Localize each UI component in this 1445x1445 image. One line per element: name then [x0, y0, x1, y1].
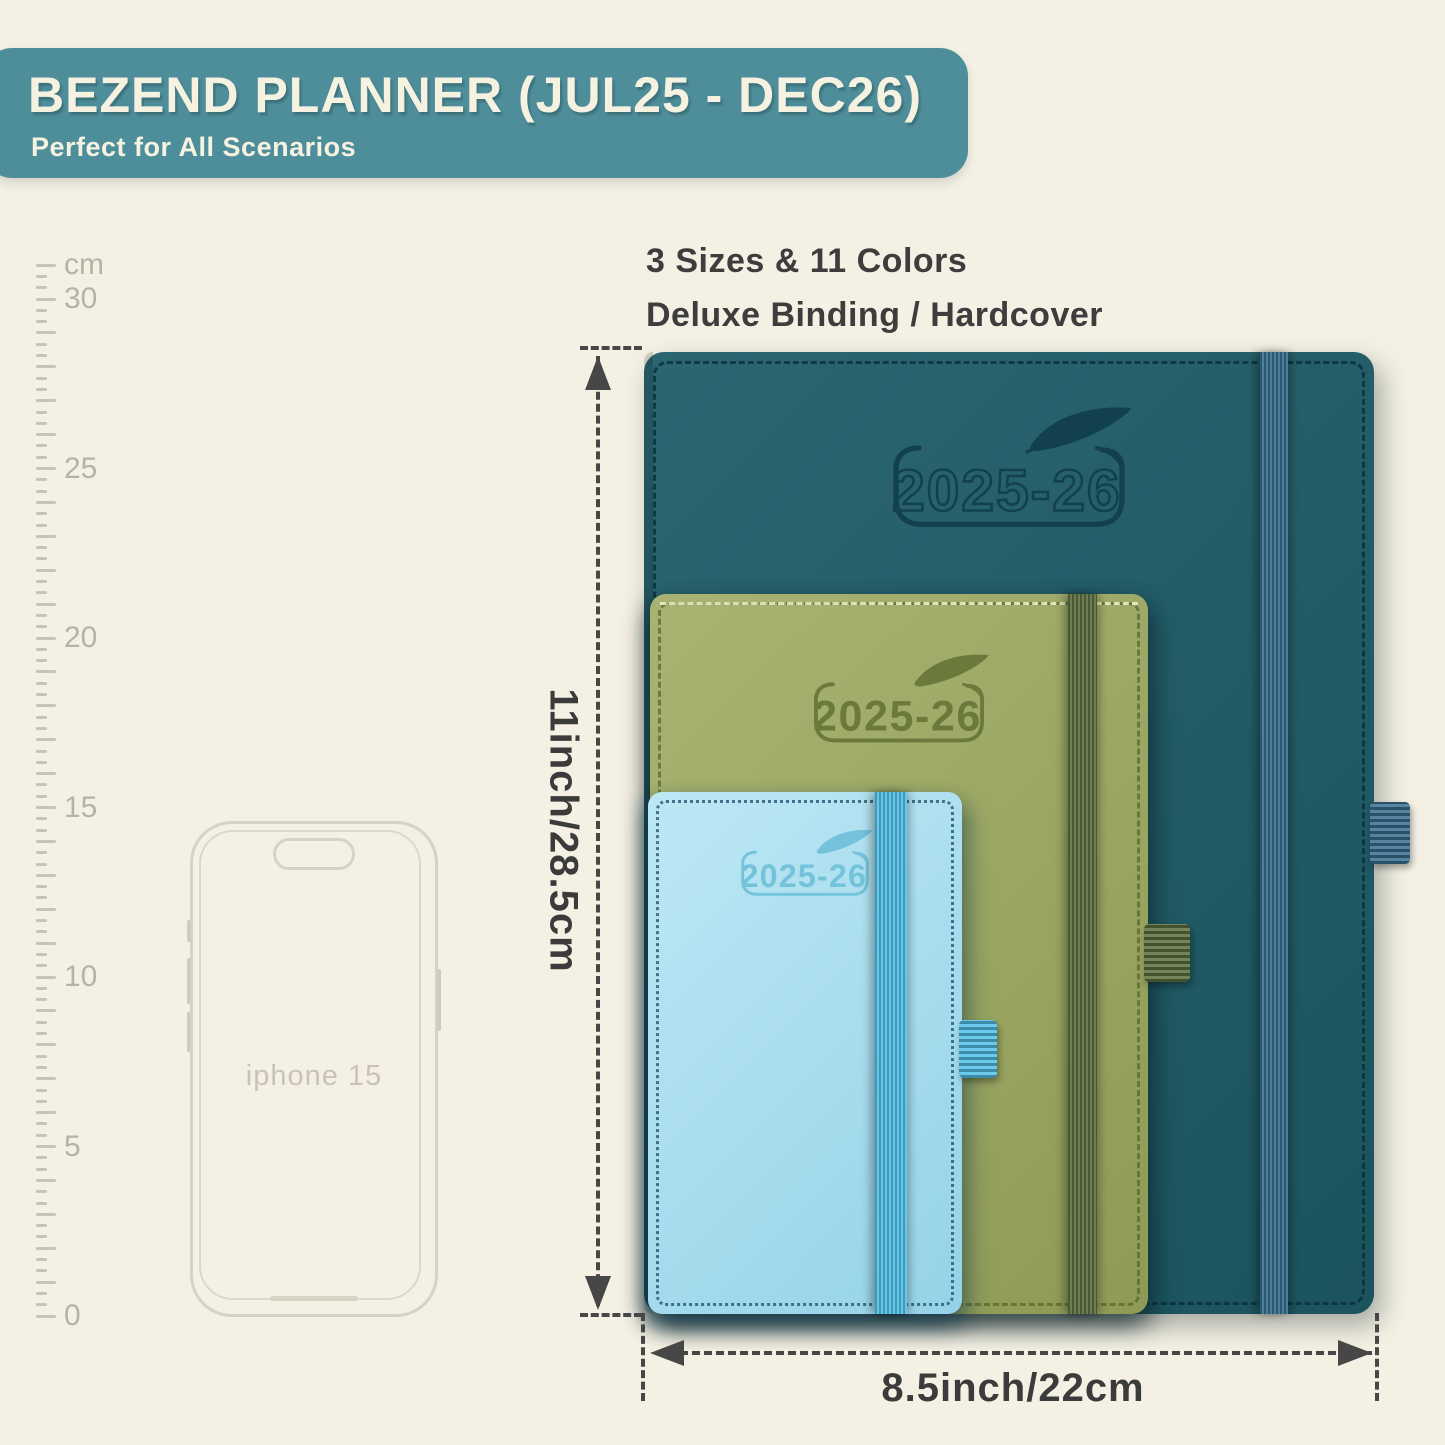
- ruler-minor-tick: [36, 761, 47, 764]
- ruler-number-label: 20: [64, 621, 97, 655]
- ruler-cm-tick: [36, 976, 56, 979]
- ruler-minor-tick: [36, 693, 47, 696]
- ruler-cm-tick: [36, 908, 56, 911]
- height-dimension-line: [596, 356, 600, 1306]
- pen-loop-medium: [1144, 924, 1190, 982]
- ruler-cm-tick: [36, 704, 56, 707]
- ruler-minor-tick: [36, 512, 47, 515]
- ruler-cm-tick: [36, 874, 56, 877]
- ruler-number-label: 25: [64, 452, 97, 486]
- ruler-minor-tick: [36, 1032, 47, 1035]
- phone-power-button: [437, 969, 441, 1031]
- ruler-minor-tick: [36, 478, 47, 481]
- ruler-number-label: 5: [64, 1130, 81, 1164]
- phone-home-indicator: [270, 1296, 358, 1301]
- ruler-minor-tick: [36, 716, 47, 719]
- year-logo-medium: 2025-26: [799, 652, 999, 748]
- ruler-minor-tick: [36, 682, 47, 685]
- feather-icon: [914, 655, 989, 687]
- feature-line-sizes-colors: 3 Sizes & 11 Colors: [646, 234, 1103, 288]
- cm-ruler: 302520151050cm: [36, 0, 146, 1445]
- ruler-cm-tick: [36, 264, 56, 267]
- ruler-minor-tick: [36, 783, 47, 786]
- ruler-minor-tick: [36, 964, 47, 967]
- ruler-cm-tick: [36, 1043, 56, 1046]
- ruler-cm-tick: [36, 1145, 56, 1148]
- elastic-band-medium: [1068, 594, 1097, 1314]
- height-arrow-down-icon: [585, 1276, 611, 1310]
- ruler-minor-tick: [36, 444, 47, 447]
- ruler-minor-tick: [36, 648, 47, 651]
- ruler-minor-tick: [36, 546, 47, 549]
- ruler-cm-tick: [36, 501, 56, 504]
- ruler-minor-tick: [36, 885, 47, 888]
- product-infographic: BEZEND PLANNER (JUL25 - DEC26) Perfect f…: [0, 0, 1445, 1445]
- ruler-minor-tick: [36, 953, 47, 956]
- ruler-cm-tick: [36, 399, 56, 402]
- ruler-minor-tick: [36, 580, 47, 583]
- feature-text: 3 Sizes & 11 Colors Deluxe Binding / Har…: [646, 234, 1103, 342]
- height-dim-bottom-tick: [580, 1313, 642, 1317]
- ruler-cm-tick: [36, 942, 56, 945]
- ruler-minor-tick: [36, 286, 47, 289]
- phone-volume-button-3: [187, 1012, 191, 1052]
- ruler-minor-tick: [36, 1258, 47, 1261]
- ruler-minor-tick: [36, 320, 47, 323]
- ruler-minor-tick: [36, 998, 47, 1001]
- ruler-number-label: 15: [64, 791, 97, 825]
- phone-volume-button-1: [187, 920, 191, 942]
- ruler-minor-tick: [36, 930, 47, 933]
- ruler-cm-tick: [36, 1315, 56, 1318]
- ruler-cm-tick: [36, 298, 56, 301]
- year-logo-small: 2025-26: [730, 828, 880, 900]
- feather-icon: [817, 830, 873, 854]
- ruler-cm-tick: [36, 433, 56, 436]
- ruler-minor-tick: [36, 557, 47, 560]
- width-dim-right-tick: [1375, 1313, 1379, 1401]
- year-text-large: 2025-26: [892, 459, 1122, 524]
- ruler-cm-tick: [36, 840, 56, 843]
- ruler-minor-tick: [36, 1168, 47, 1171]
- ruler-cm-tick: [36, 738, 56, 741]
- ruler-cm-tick: [36, 467, 56, 470]
- ruler-cm-tick: [36, 1281, 56, 1284]
- ruler-minor-tick: [36, 659, 47, 662]
- product-title: BEZEND PLANNER (JUL25 - DEC26): [28, 66, 922, 124]
- phone-dynamic-island: [273, 838, 355, 870]
- ruler-minor-tick: [36, 987, 47, 990]
- feature-line-binding: Deluxe Binding / Hardcover: [646, 288, 1103, 342]
- ruler-minor-tick: [36, 1089, 47, 1092]
- ruler-minor-tick: [36, 1100, 47, 1103]
- phone-volume-button-2: [187, 958, 191, 1004]
- ruler-cm-tick: [36, 1179, 56, 1182]
- ruler-cm-tick: [36, 806, 56, 809]
- ruler-number-label: 0: [64, 1299, 81, 1333]
- width-dimension-line: [656, 1351, 1372, 1355]
- width-dim-left-tick: [641, 1313, 645, 1401]
- ruler-minor-tick: [36, 829, 47, 832]
- width-arrow-left-icon: [650, 1340, 684, 1366]
- ruler-unit-label: cm: [64, 248, 104, 282]
- ruler-minor-tick: [36, 1303, 47, 1306]
- ruler-minor-tick: [36, 625, 47, 628]
- ruler-minor-tick: [36, 456, 47, 459]
- ruler-minor-tick: [36, 1156, 47, 1159]
- ruler-minor-tick: [36, 422, 47, 425]
- year-logo-large: 2025-26: [873, 404, 1145, 535]
- ruler-minor-tick: [36, 896, 47, 899]
- ruler-cm-tick: [36, 365, 56, 368]
- ruler-minor-tick: [36, 1292, 47, 1295]
- ruler-minor-tick: [36, 1202, 47, 1205]
- ruler-minor-tick: [36, 1066, 47, 1069]
- ruler-minor-tick: [36, 1122, 47, 1125]
- height-dim-top-tick: [580, 346, 642, 350]
- ruler-minor-tick: [36, 388, 47, 391]
- ruler-cm-tick: [36, 569, 56, 572]
- stitching-medium-top: [660, 602, 1138, 605]
- height-arrow-up-icon: [585, 356, 611, 390]
- ruler-number-label: 30: [64, 282, 97, 316]
- width-dimension-label: 8.5inch/22cm: [813, 1366, 1213, 1411]
- ruler-minor-tick: [36, 1134, 47, 1137]
- year-text-small: 2025-26: [741, 858, 868, 894]
- ruler-cm-tick: [36, 637, 56, 640]
- phone-label: iphone 15: [193, 1060, 435, 1093]
- ruler-number-label: 10: [64, 960, 97, 994]
- year-text-medium: 2025-26: [813, 692, 982, 740]
- ruler-minor-tick: [36, 1021, 47, 1024]
- ruler-minor-tick: [36, 1224, 47, 1227]
- elastic-band-small: [875, 792, 907, 1314]
- ruler-cm-tick: [36, 1009, 56, 1012]
- ruler-cm-tick: [36, 772, 56, 775]
- height-dimension-label: 11inch/28.5cm: [541, 631, 586, 1031]
- ruler-minor-tick: [36, 524, 47, 527]
- ruler-minor-tick: [36, 1235, 47, 1238]
- ruler-minor-tick: [36, 377, 47, 380]
- pen-loop-large: [1370, 802, 1410, 864]
- elastic-band-large: [1260, 352, 1288, 1314]
- ruler-minor-tick: [36, 863, 47, 866]
- ruler-cm-tick: [36, 331, 56, 334]
- ruler-minor-tick: [36, 591, 47, 594]
- width-arrow-right-icon: [1338, 1340, 1372, 1366]
- ruler-minor-tick: [36, 343, 47, 346]
- ruler-minor-tick: [36, 795, 47, 798]
- ruler-cm-tick: [36, 535, 56, 538]
- ruler-minor-tick: [36, 490, 47, 493]
- ruler-minor-tick: [36, 919, 47, 922]
- phone-outline: iphone 15: [190, 821, 438, 1317]
- ruler-minor-tick: [36, 411, 47, 414]
- ruler-cm-tick: [36, 1247, 56, 1250]
- ruler-minor-tick: [36, 727, 47, 730]
- ruler-cm-tick: [36, 1111, 56, 1114]
- ruler-cm-tick: [36, 603, 56, 606]
- ruler-cm-tick: [36, 1077, 56, 1080]
- ruler-minor-tick: [36, 614, 47, 617]
- ruler-minor-tick: [36, 750, 47, 753]
- planner-small: 2025-26: [648, 792, 962, 1314]
- ruler-minor-tick: [36, 1190, 47, 1193]
- ruler-minor-tick: [36, 817, 47, 820]
- ruler-minor-tick: [36, 354, 47, 357]
- ruler-minor-tick: [36, 275, 47, 278]
- ruler-minor-tick: [36, 851, 47, 854]
- ruler-minor-tick: [36, 1055, 47, 1058]
- ruler-cm-tick: [36, 1213, 56, 1216]
- pen-loop-small: [959, 1020, 997, 1078]
- ruler-minor-tick: [36, 309, 47, 312]
- ruler-cm-tick: [36, 670, 56, 673]
- ruler-minor-tick: [36, 1269, 47, 1272]
